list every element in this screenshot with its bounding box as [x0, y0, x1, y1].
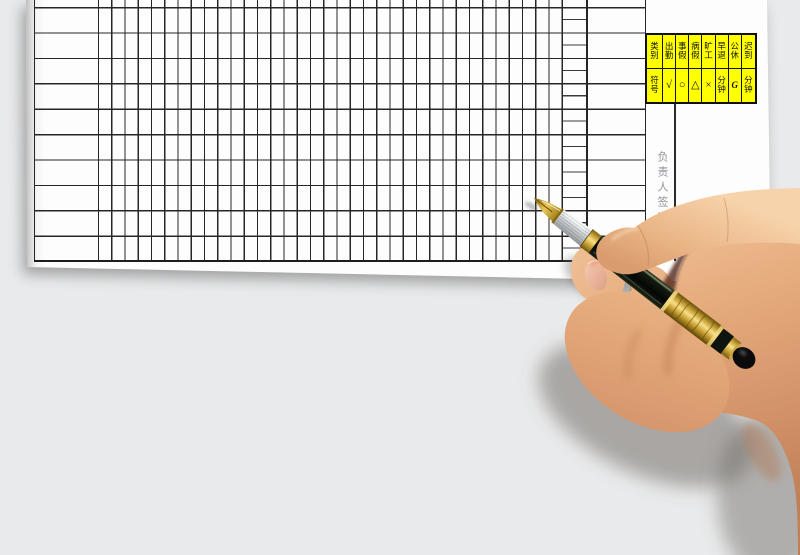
legend-symbol-minutes: 分钟 — [742, 69, 755, 103]
legend-symbol-minutes: 分钟 — [716, 69, 729, 103]
legend-cell: 旷工 — [702, 35, 715, 69]
legend-symbol-cross: × — [702, 69, 715, 103]
legend-cell: 出勤 — [663, 35, 676, 69]
legend-header-category: 类别 — [647, 35, 663, 69]
legend-cell: 公休 — [729, 35, 742, 69]
hand-with-pen-photo — [420, 120, 800, 555]
legend-cell: 早退 — [716, 35, 729, 69]
legend-cell: 病假 — [689, 35, 702, 69]
attendance-sheet-photo: 类别 出勤 事假 病假 旷工 早退 公休 迟到 符号 √ ○ △ × 分钟 G … — [0, 0, 800, 555]
legend-cell: 事假 — [676, 35, 689, 69]
legend-symbol-circle: ○ — [676, 69, 689, 103]
legend-table: 类别 出勤 事假 病假 旷工 早退 公休 迟到 符号 √ ○ △ × 分钟 G … — [645, 33, 757, 104]
legend-cell: 迟到 — [742, 35, 755, 69]
legend-header-symbol: 符号 — [647, 69, 663, 103]
grid-left-border — [34, 0, 35, 261]
legend-symbol-check: √ — [663, 69, 676, 103]
legend-symbol-triangle: △ — [689, 69, 702, 103]
legend-symbol-g: G — [729, 69, 742, 103]
